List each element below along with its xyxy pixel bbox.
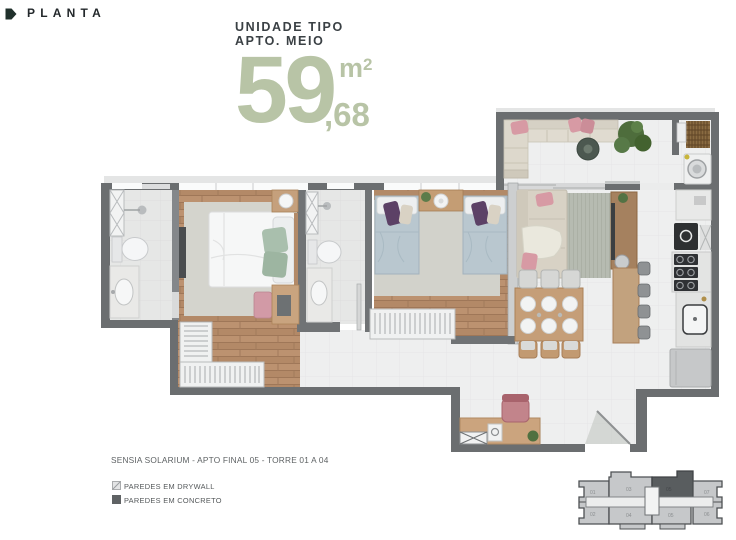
svg-text:04: 04	[626, 513, 632, 519]
svg-text:05: 05	[666, 487, 672, 493]
svg-text:01: 01	[590, 490, 596, 496]
svg-text:06: 06	[704, 512, 710, 518]
svg-text:02: 02	[590, 512, 596, 518]
svg-text:07: 07	[704, 490, 710, 496]
svg-text:03: 03	[626, 487, 632, 493]
svg-text:05: 05	[668, 513, 674, 519]
